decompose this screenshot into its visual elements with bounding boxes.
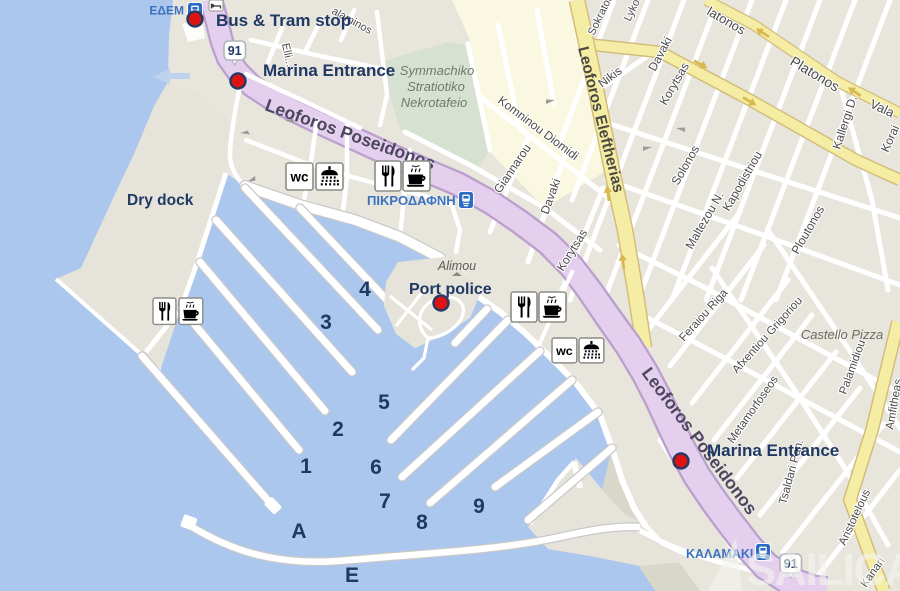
svg-text:Bus & Tram stop: Bus & Tram stop	[216, 11, 351, 30]
svg-text:Stratiotiko: Stratiotiko	[407, 79, 465, 94]
svg-text:Dry dock: Dry dock	[127, 192, 194, 209]
svg-text:ΚΑΛΑΜΑΚΙ: ΚΑΛΑΜΑΚΙ	[686, 547, 753, 561]
svg-text:1: 1	[300, 455, 312, 478]
svg-text:4: 4	[359, 278, 371, 301]
svg-text:8: 8	[416, 511, 428, 534]
svg-text:A: A	[291, 520, 306, 543]
svg-text:7: 7	[379, 490, 391, 513]
svg-text:Nekrotafeio: Nekrotafeio	[401, 95, 467, 110]
svg-text:Marina Entrance: Marina Entrance	[263, 61, 395, 80]
svg-text:Port police: Port police	[409, 281, 492, 298]
svg-text:6: 6	[370, 456, 382, 479]
svg-text:Symmachiko: Symmachiko	[400, 63, 474, 78]
svg-text:SAILICA: SAILICA	[746, 544, 900, 591]
svg-text:ΕΔΕΜ: ΕΔΕΜ	[149, 4, 184, 18]
svg-text:3: 3	[320, 311, 332, 334]
svg-text:Castello Pizza: Castello Pizza	[801, 327, 883, 342]
svg-text:Marina Entrance: Marina Entrance	[707, 441, 839, 460]
svg-text:9: 9	[473, 495, 485, 518]
svg-text:Alimou: Alimou	[437, 259, 476, 273]
svg-text:ΠΙΚΡΟΔΑΦΝΗ: ΠΙΚΡΟΔΑΦΝΗ	[367, 193, 456, 208]
svg-text:2: 2	[332, 418, 344, 441]
svg-text:E: E	[345, 564, 359, 587]
svg-text:5: 5	[378, 391, 390, 414]
